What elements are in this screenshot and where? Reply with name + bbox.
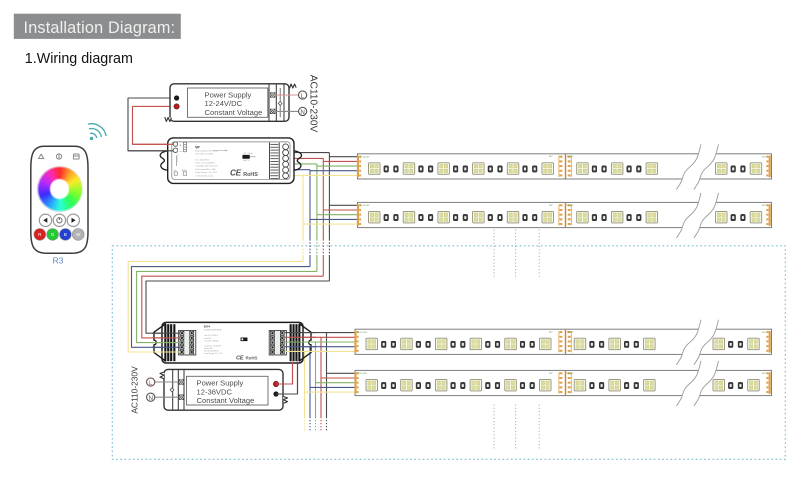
svg-text:W: W <box>76 232 81 237</box>
svg-text:Constant Voltage: Constant Voltage <box>205 108 263 117</box>
svg-text:Out 4CH x 5A Max: Out 4CH x 5A Max <box>204 339 219 342</box>
svg-text:Temp Range: -20~+55C: Temp Range: -20~+55C <box>195 172 218 174</box>
svg-text:Constant Voltage: Constant Voltage <box>197 396 255 405</box>
svg-text:Load Max 480 Channels: Load Max 480 Channels <box>195 166 218 168</box>
svg-text:Load: 4 x5.0 (5)4VDC: Load: 4 x5.0 (5)4VDC <box>195 163 216 165</box>
svg-text:12-24V: 12-24V <box>567 156 574 158</box>
svg-text:AC110-230V: AC110-230V <box>130 366 140 414</box>
svg-text:POWER REPEATER: POWER REPEATER <box>204 329 222 332</box>
svg-text:12-24V: 12-24V <box>567 205 574 207</box>
svg-text:In=4x5A: In=4x5A <box>204 337 211 340</box>
svg-text:24V: 24V <box>549 332 553 334</box>
svg-text:12V / 24mA: 12V / 24mA <box>243 152 253 155</box>
svg-text:12-24V: 12-24V <box>567 373 574 375</box>
svg-text:Switch 8A: Switch 8A <box>204 347 213 350</box>
svg-text:AC110-230V: AC110-230V <box>308 75 319 133</box>
svg-text:12-24V: 12-24V <box>567 332 574 334</box>
svg-text:12-24V/DC: 12-24V/DC <box>205 99 243 108</box>
svg-text:12-36VDC: 12-36VDC <box>197 387 233 396</box>
svg-text:B: B <box>64 232 67 237</box>
svg-text:DC12-24V: DC12-24V <box>360 205 370 207</box>
svg-text:24V: 24V <box>762 156 766 158</box>
svg-text:N: N <box>148 395 152 402</box>
svg-text:24V: 24V <box>762 373 766 375</box>
svg-text:N: N <box>300 109 304 116</box>
svg-text:Total output Max: 15A: Total output Max: 15A <box>195 168 216 171</box>
svg-text:ADDR: ADDR <box>182 169 188 172</box>
svg-text:RoHS: RoHS <box>243 172 258 178</box>
svg-text:24V: 24V <box>549 373 553 375</box>
svg-text:24V: 24V <box>762 205 766 207</box>
svg-text:24V: 24V <box>762 332 766 334</box>
svg-text:Installation Diagram:: Installation Diagram: <box>24 19 176 37</box>
svg-text:E: E <box>236 168 242 177</box>
svg-text:5 off channel zones: 5 off channel zones <box>195 175 213 177</box>
svg-text:24V: 24V <box>549 205 553 207</box>
svg-text:Use: 1A 24VDC: Use: 1A 24VDC <box>195 158 210 161</box>
svg-text:24V: 24V <box>549 156 553 158</box>
svg-text:G: G <box>51 232 55 237</box>
svg-text:1.Wiring diagram: 1.Wiring diagram <box>25 51 133 67</box>
svg-text:MATCH: MATCH <box>243 159 250 162</box>
svg-text:R3: R3 <box>53 256 64 266</box>
svg-text:EV4: EV4 <box>204 325 210 329</box>
svg-text:L: L <box>301 93 305 100</box>
svg-text:L: L <box>149 380 153 387</box>
svg-text:Power Supply: Power Supply <box>205 90 252 99</box>
svg-text:DC12-24V: DC12-24V <box>357 332 367 334</box>
svg-text:RoHS: RoHS <box>246 356 258 361</box>
svg-text:4CH LED Controller: 4CH LED Controller <box>195 152 214 155</box>
svg-text:DC12-24V: DC12-24V <box>360 156 370 158</box>
svg-text:VP: VP <box>195 145 200 149</box>
svg-text:DC12-24V: DC12-24V <box>357 373 367 375</box>
svg-text:Hafenfunktion Dimmung: Hafenfunktion Dimmung <box>195 149 218 152</box>
svg-text:Temp Range:-20~+55C: Temp Range:-20~+55C <box>204 353 223 355</box>
svg-text:Power Supply: Power Supply <box>197 379 244 388</box>
